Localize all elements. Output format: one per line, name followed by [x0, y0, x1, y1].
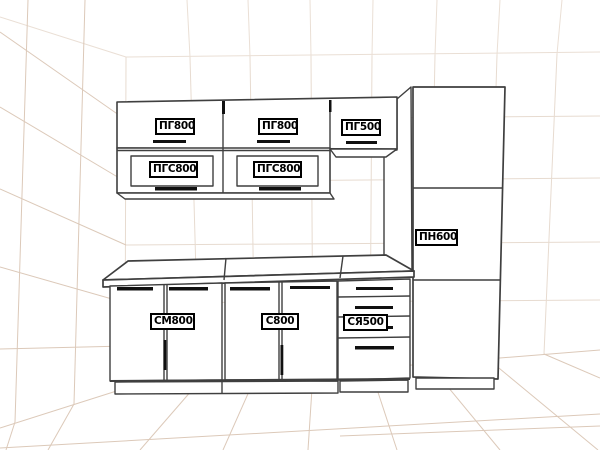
door-gap-accent [281, 345, 284, 375]
label-base-cabinet-sya500: СЯ500 [343, 314, 388, 331]
label-wall-cabinet-pg500: ПГ500 [341, 119, 381, 136]
kitchen-perspective-drawing [0, 0, 600, 450]
ceiling-grid [0, 0, 600, 57]
label-wall-cabinet-pgs800-2: ПГС800 [253, 161, 302, 178]
door-gap-accent [329, 100, 332, 112]
label-base-cabinet-sm800: СМ800 [150, 313, 195, 330]
label-wall-cabinet-pg800-2: ПГ800 [258, 118, 298, 135]
pg500-underside [330, 149, 397, 157]
pgs-row-underside [117, 193, 334, 199]
label-tall-cabinet-pn600: ПН600 [415, 229, 458, 246]
kitchen-design-canvas: ПГ800 ПГ800 ПГ500 ПГС800 ПГС800 ПН600 СМ… [0, 0, 600, 450]
tall-cabinet-plinth [416, 378, 494, 389]
label-wall-cabinet-pgs800-1: ПГС800 [149, 161, 198, 178]
door-gap-accent [164, 340, 167, 370]
label-base-cabinet-s800: С800 [261, 313, 299, 330]
left-wall-grid [0, 0, 126, 422]
door-gap-accent [222, 101, 225, 114]
label-wall-cabinet-pg800-1: ПГ800 [155, 118, 195, 135]
base-plinth [110, 379, 410, 394]
